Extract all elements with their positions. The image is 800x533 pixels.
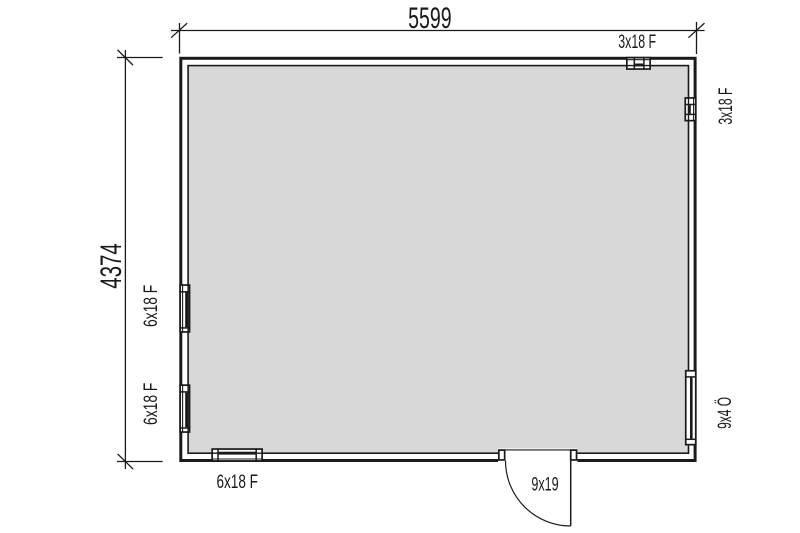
svg-text:6x18 F: 6x18 F bbox=[140, 285, 162, 327]
svg-text:5599: 5599 bbox=[408, 2, 452, 35]
svg-text:6x18 F: 6x18 F bbox=[140, 383, 162, 425]
svg-text:4374: 4374 bbox=[95, 243, 128, 289]
svg-text:3x18 F: 3x18 F bbox=[618, 31, 656, 53]
svg-text:3x18 F: 3x18 F bbox=[715, 88, 737, 125]
svg-text:6x18 F: 6x18 F bbox=[216, 471, 258, 493]
svg-text:9x4 Ö: 9x4 Ö bbox=[714, 397, 736, 429]
svg-text:9x19: 9x19 bbox=[531, 473, 558, 495]
